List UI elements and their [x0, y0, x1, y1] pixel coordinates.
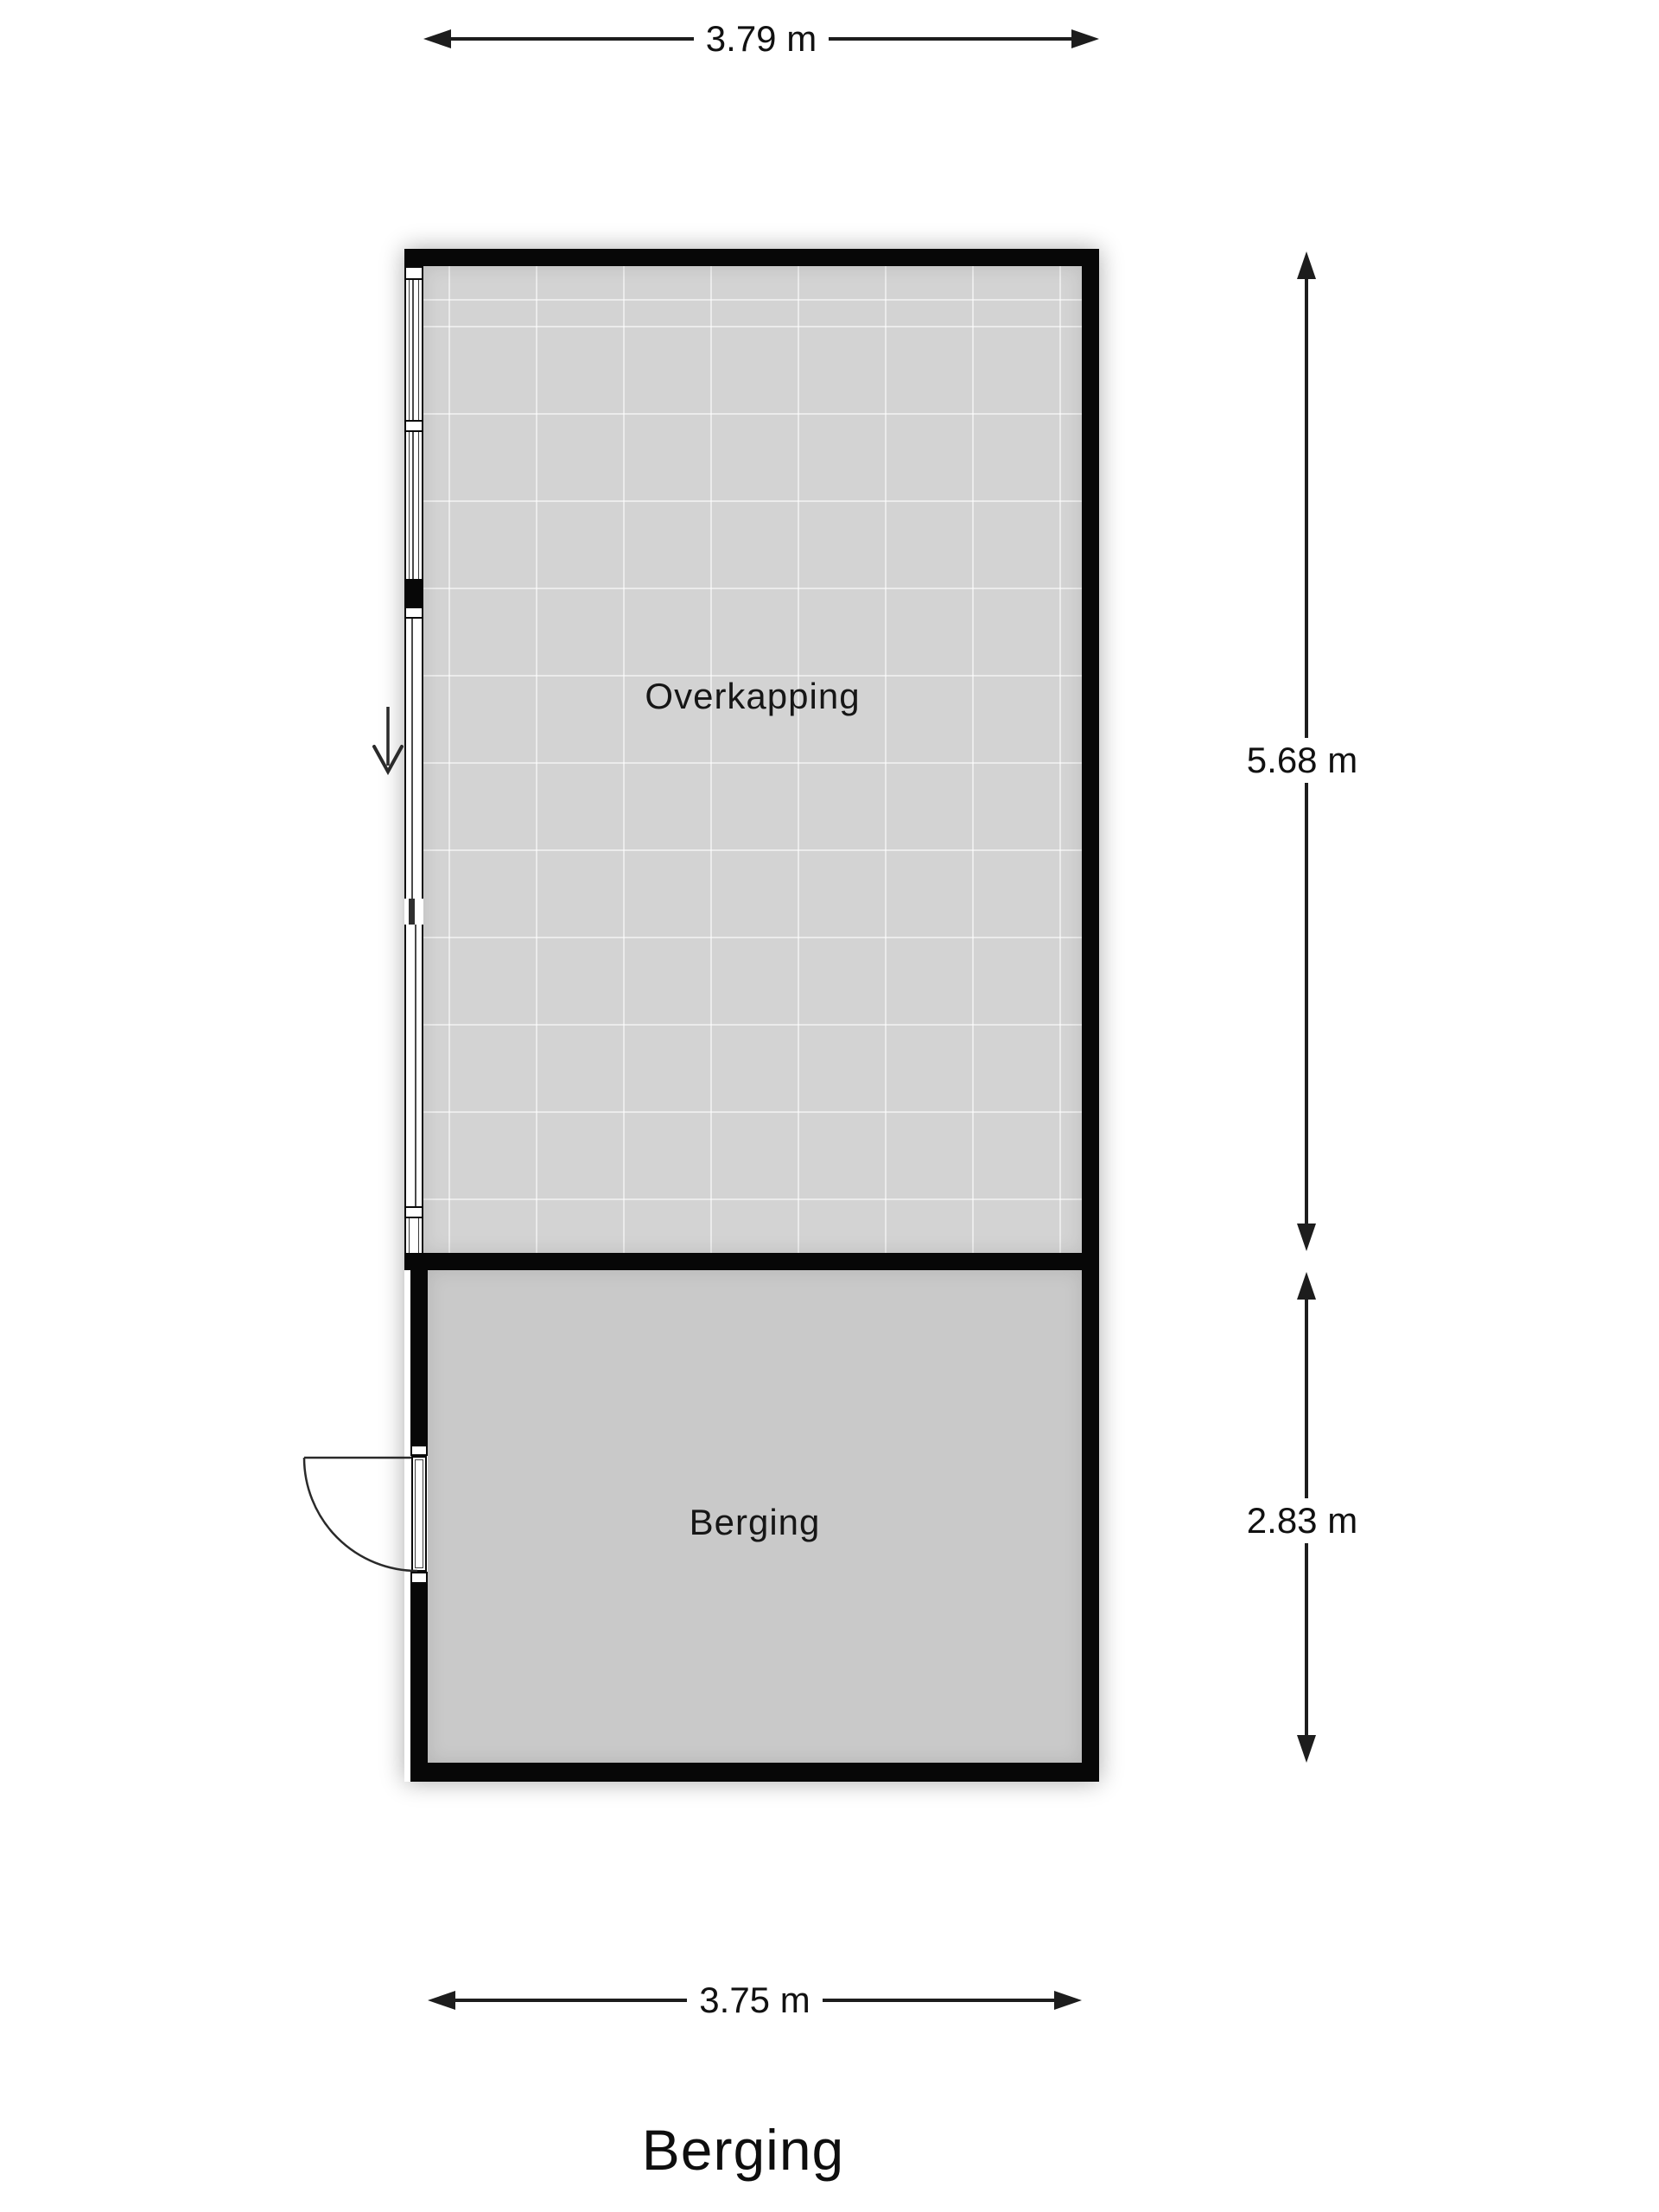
window-upper: [404, 280, 423, 420]
arrowhead-up-icon: [1297, 251, 1316, 279]
wall-middle: [404, 1253, 1099, 1270]
dimension-top: 3.79 m: [423, 20, 1099, 58]
arrowhead-left-icon: [423, 29, 451, 48]
window-mullion: [404, 420, 423, 432]
entrance-arrow-icon: [374, 747, 402, 772]
wall-berging-left-lower: [410, 1584, 428, 1763]
dimension-top-label: 3.79 m: [694, 18, 829, 60]
arrowhead-down-icon: [1297, 1224, 1316, 1251]
wall-top: [404, 249, 1099, 266]
dimension-line: [1305, 1297, 1308, 1498]
dimension-line: [1305, 1543, 1308, 1737]
slider-glass-line: [415, 925, 416, 1206]
door-slab-inner-line: [415, 1459, 423, 1568]
window-frame-line: [418, 1218, 419, 1253]
sliding-door-panel-upper: [404, 619, 423, 899]
dimension-bottom-label: 3.75 m: [687, 1980, 822, 2021]
dimension-bottom: 3.75 m: [428, 1981, 1082, 2019]
dimension-line: [1305, 783, 1308, 1225]
wall-berging-left-upper: [410, 1270, 428, 1445]
window-glass-line: [412, 280, 414, 420]
door-jamb-bottom: [410, 1572, 428, 1584]
slider-glass-line: [411, 619, 413, 899]
dimension-line: [829, 37, 1071, 41]
arrowhead-down-icon: [1297, 1735, 1316, 1763]
dimension-line: [455, 1999, 687, 2002]
room-label-berging: Berging: [428, 1502, 1082, 1543]
floorplan-canvas: 3.79 m: [0, 0, 1659, 2212]
window-glass-line: [412, 432, 414, 579]
slider-jamb: [404, 1206, 423, 1218]
window-frame-line: [409, 1218, 410, 1253]
window-frame-line: [418, 280, 419, 420]
dimension-right-lower-label: 2.83 m: [1247, 1500, 1357, 1541]
dimension-line: [823, 1999, 1054, 2002]
sliding-door-panel-lower: [404, 925, 423, 1206]
arrowhead-left-icon: [428, 1991, 455, 2010]
page-title: Berging: [363, 2117, 1123, 2183]
dimension-line: [1305, 276, 1308, 738]
door-swing-arc-icon: [304, 1458, 417, 1571]
window-sill-segment: [404, 1218, 423, 1253]
arrowhead-up-icon: [1297, 1272, 1316, 1300]
room-label-overkapping: Overkapping: [423, 676, 1082, 717]
window-frame-line: [409, 280, 410, 420]
door-jamb-top: [410, 1445, 428, 1456]
wall-pier: [404, 579, 423, 607]
wall-right: [1082, 249, 1099, 1782]
window-frame-line: [418, 432, 419, 579]
arrowhead-right-icon: [1054, 1991, 1082, 2010]
window-lower: [404, 432, 423, 579]
wall-bottom: [410, 1763, 1099, 1782]
dimension-line: [451, 37, 694, 41]
arrowhead-right-icon: [1071, 29, 1099, 48]
door-slab: [411, 1456, 427, 1572]
window-frame-line: [409, 432, 410, 579]
window-jamb: [404, 266, 423, 280]
overkapping-floor: [423, 266, 1082, 1253]
slider-jamb: [404, 607, 423, 619]
dimension-right-upper-label: 5.68 m: [1247, 740, 1357, 781]
